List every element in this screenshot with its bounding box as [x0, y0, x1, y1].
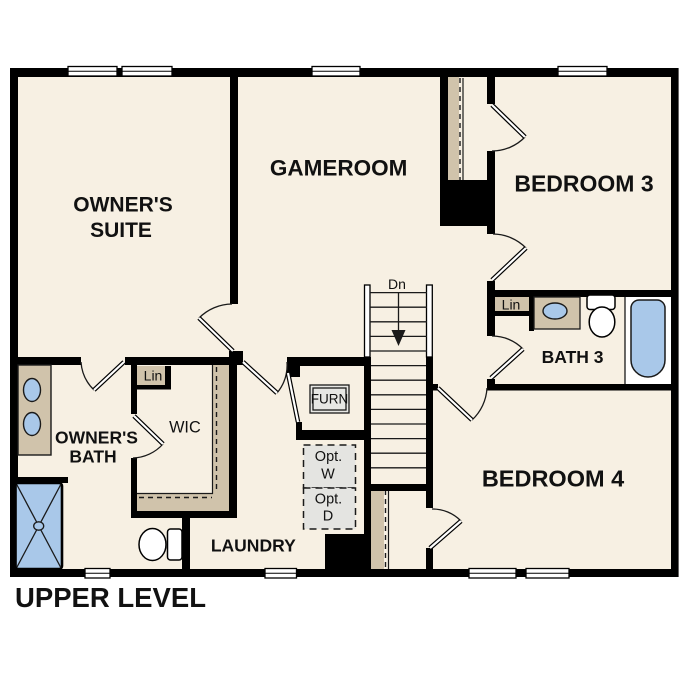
svg-text:BATH 3: BATH 3: [542, 347, 604, 367]
svg-text:BATH: BATH: [69, 446, 116, 466]
svg-text:GAMEROOM: GAMEROOM: [270, 156, 408, 181]
svg-text:LAUNDRY: LAUNDRY: [211, 536, 296, 556]
svg-text:Lin: Lin: [144, 368, 163, 384]
svg-text:FURN: FURN: [311, 392, 349, 407]
svg-text:W: W: [321, 467, 335, 483]
svg-text:Opt.: Opt.: [315, 492, 342, 508]
svg-text:BEDROOM 4: BEDROOM 4: [482, 466, 624, 492]
svg-text:D: D: [323, 509, 333, 525]
svg-text:OWNER'S: OWNER'S: [55, 428, 138, 448]
svg-text:Lin: Lin: [502, 297, 521, 313]
svg-text:Opt.: Opt.: [315, 449, 342, 465]
svg-text:SUITE: SUITE: [90, 219, 152, 242]
svg-text:Dn: Dn: [388, 276, 406, 292]
svg-text:OWNER'S: OWNER'S: [73, 194, 173, 217]
svg-text:WIC: WIC: [169, 419, 201, 437]
svg-text:BEDROOM 3: BEDROOM 3: [514, 170, 653, 196]
svg-text:UPPER LEVEL: UPPER LEVEL: [15, 582, 206, 613]
